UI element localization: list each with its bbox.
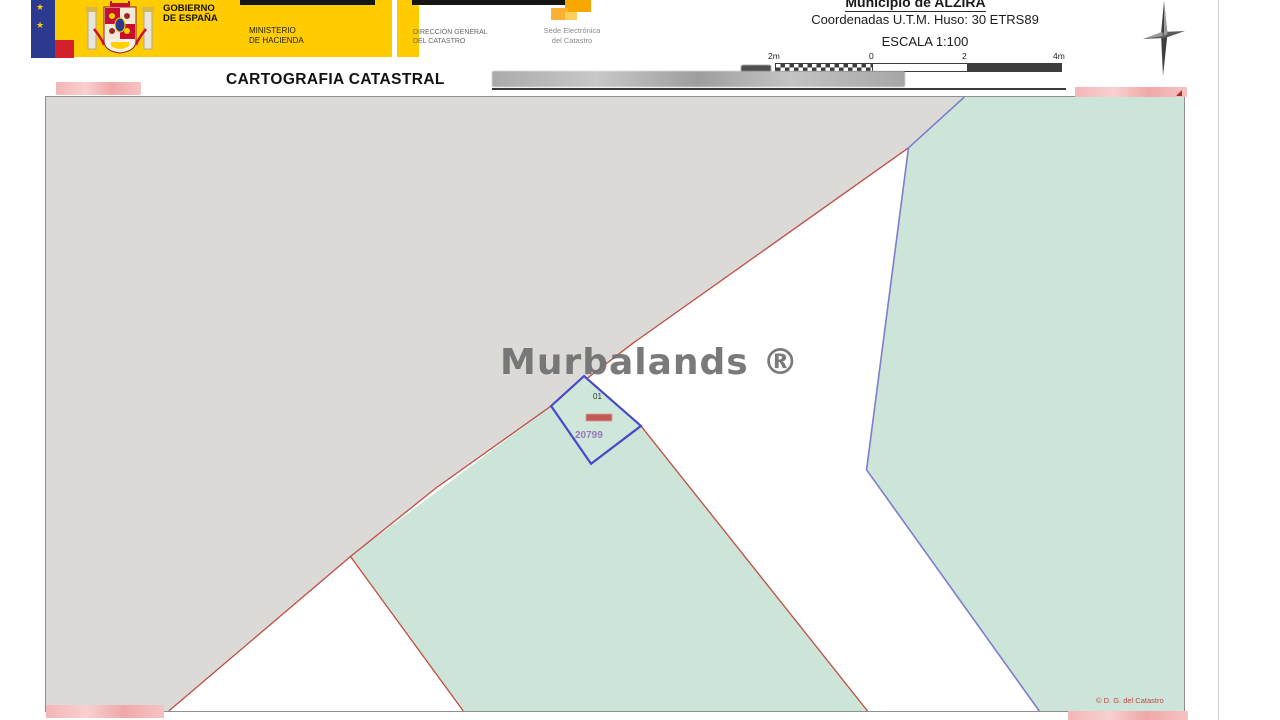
redacted-coordinate-bar [46,705,164,718]
direccion-general-label: DIRECCIÓN GENERAL DEL CATASTRO [413,28,488,46]
map-regions [46,97,1184,711]
redacted-coordinate-bar [1075,87,1187,97]
eu-flag-icon: ★ ★ [31,0,55,58]
scale-tick-label: 4m [1053,51,1065,61]
scale-bar-empty-segment [872,64,967,71]
spain-flag-yellow-band [55,0,74,40]
redacted-coordinate-bar [1068,711,1188,720]
parcel-sub-label: 01 [593,392,602,401]
sede-electronica-label: Sede Electrónica del Catastro [527,26,617,46]
scale-bar-checker-segment [776,64,872,71]
government-name: GOBIERNO DE ESPAÑA [163,4,218,24]
page-edge-line [1218,0,1219,720]
cadastral-map-canvas [45,96,1185,712]
spain-flag-red-band [55,40,74,58]
municipality-title: Municipio de ALZIRA [818,0,1013,12]
scale-tick-label: 0 [869,51,874,61]
map-copyright: © D. G. del Catastro [1096,696,1164,705]
eu-star-icon: ★ [36,3,44,12]
ministry-name: MINISTERIO DE HACIENDA [249,26,304,45]
redacted-text-bar [240,0,375,5]
cadastral-map-document: ★ ★ GOBIERNO DE ESPAÑA [0,0,1280,720]
scale-tick-label: 2m [768,51,780,61]
title-underline [492,88,1066,90]
north-arrow-icon [1136,0,1192,78]
map-corner-tick [1176,90,1182,96]
government-banner: GOBIERNO DE ESPAÑA MINISTERIO DE HACIEND… [74,0,392,57]
parcel-number-label: 20799 [575,430,603,441]
utm-coordinates-label: Coordenadas U.T.M. Huso: 30 ETRS89 [760,12,1090,27]
eu-star-icon: ★ [36,21,44,30]
spain-coat-of-arms-icon [84,1,156,55]
watermark: Murbalands ® [500,342,799,383]
redacted-coordinate-bar [56,82,141,95]
map-region-green-right [867,97,1184,711]
redacted-parcel-label [586,414,612,421]
sede-electronica-logo-icon [549,0,595,23]
redacted-reference-bar [492,71,905,87]
scale-label: ESCALA 1:100 [760,34,1090,49]
scale-tick-label: 2 [962,51,967,61]
document-title: CARTOGRAFIA CATASTRAL [226,71,445,89]
scale-bar-solid-segment [967,64,1061,71]
